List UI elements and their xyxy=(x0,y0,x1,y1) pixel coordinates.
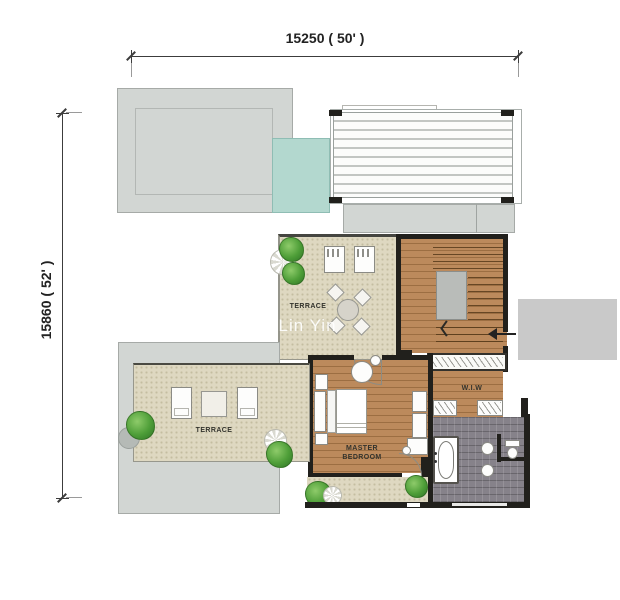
tree xyxy=(405,475,428,498)
master-bedroom-label-line1: MASTER xyxy=(318,444,406,453)
lounger-headrest xyxy=(327,249,342,257)
dimension-top-extension-right xyxy=(518,63,519,77)
tree xyxy=(126,411,155,440)
stair-exit-arrow-head xyxy=(488,328,497,340)
lounge-chair xyxy=(171,387,192,419)
stair-exit-arrow-line xyxy=(494,333,516,335)
lower-terrace-label: TERRACE xyxy=(188,426,240,436)
column-post xyxy=(329,110,342,116)
column-post xyxy=(501,110,514,116)
master-bedroom-label: MASTER BEDROOM xyxy=(318,444,406,463)
railing-balusters xyxy=(431,357,503,367)
wall-bottom-gap xyxy=(407,503,420,507)
duvet-fold xyxy=(337,423,366,424)
wardrobe-unit xyxy=(412,391,427,412)
wall-wiw-left xyxy=(428,353,433,417)
column-post xyxy=(329,197,342,203)
roof-slab-band xyxy=(343,204,515,233)
wall-stair-right xyxy=(503,234,508,332)
cabinet-door-hatch xyxy=(479,402,501,414)
wash-basin xyxy=(481,464,494,477)
stair-railing xyxy=(427,353,507,371)
wash-basin xyxy=(481,442,494,455)
wardrobe-unit xyxy=(412,413,427,438)
dimension-top-label: 15250 ( 50' ) xyxy=(233,30,417,46)
chair-seat xyxy=(174,408,189,416)
roof-slab-band-divider xyxy=(476,204,477,233)
wall-stair-top xyxy=(396,234,508,239)
pool xyxy=(272,138,330,213)
bed-mattress xyxy=(336,389,367,434)
wardrobe-cabinet xyxy=(477,400,503,416)
dimension-left-extension-bottom xyxy=(66,497,82,498)
dimension-left-label: 15860 ( 52' ) xyxy=(38,240,54,360)
roof-slab-top-inner-outline xyxy=(135,108,273,195)
tree xyxy=(279,237,304,262)
tree xyxy=(266,441,293,468)
door-leaf-bedroom-top xyxy=(381,359,382,385)
bathtub xyxy=(433,436,459,484)
master-bedroom-label-line2: BEDROOM xyxy=(318,453,406,462)
lounger-headrest xyxy=(357,249,372,257)
nightstand xyxy=(315,374,328,390)
side-table xyxy=(370,355,381,366)
dimension-top-extension-left xyxy=(131,63,132,77)
dimension-left-line xyxy=(62,113,63,498)
side-table xyxy=(201,391,227,417)
louvre-stripes xyxy=(333,112,513,198)
stair-treads-upper xyxy=(433,241,503,271)
stair-void xyxy=(436,271,467,320)
lounge-chair xyxy=(237,387,258,419)
dimension-top-line xyxy=(131,56,518,57)
tree xyxy=(282,262,305,285)
round-chair xyxy=(351,361,373,383)
toilet xyxy=(507,447,518,459)
column-post xyxy=(501,197,514,203)
wall-bedroom-top-a xyxy=(308,355,354,360)
wiw-label: W.I.W xyxy=(450,384,494,393)
bathtub-tap xyxy=(434,460,437,463)
cabinet-door-hatch xyxy=(435,402,455,414)
bathroom-window xyxy=(452,503,507,506)
wall-bathroom-right xyxy=(524,414,530,508)
sun-lounger xyxy=(324,246,345,273)
bed-headboard xyxy=(314,391,326,432)
wall-bedroom-top-b xyxy=(382,355,430,360)
stair-treads-right xyxy=(468,271,503,321)
floor-plan-canvas: 15250 ( 50' ) 15860 ( 52' ) TERRACE xyxy=(0,0,620,600)
bathtub-tap xyxy=(434,452,437,455)
wall-bedroom-bottom-right xyxy=(421,457,428,478)
chair-seat xyxy=(240,408,255,416)
watermark-text: i Lin Yin xyxy=(268,316,398,340)
bed-pillow xyxy=(327,390,336,433)
toilet-tank xyxy=(505,440,520,447)
bathtub-basin xyxy=(438,441,454,479)
sun-lounger xyxy=(354,246,375,273)
duvet-fold xyxy=(337,427,366,428)
wardrobe-cabinet xyxy=(433,400,457,416)
dimension-left-extension-top xyxy=(66,112,82,113)
upper-terrace-label: TERRACE xyxy=(282,302,334,312)
watermark-block xyxy=(518,299,617,360)
